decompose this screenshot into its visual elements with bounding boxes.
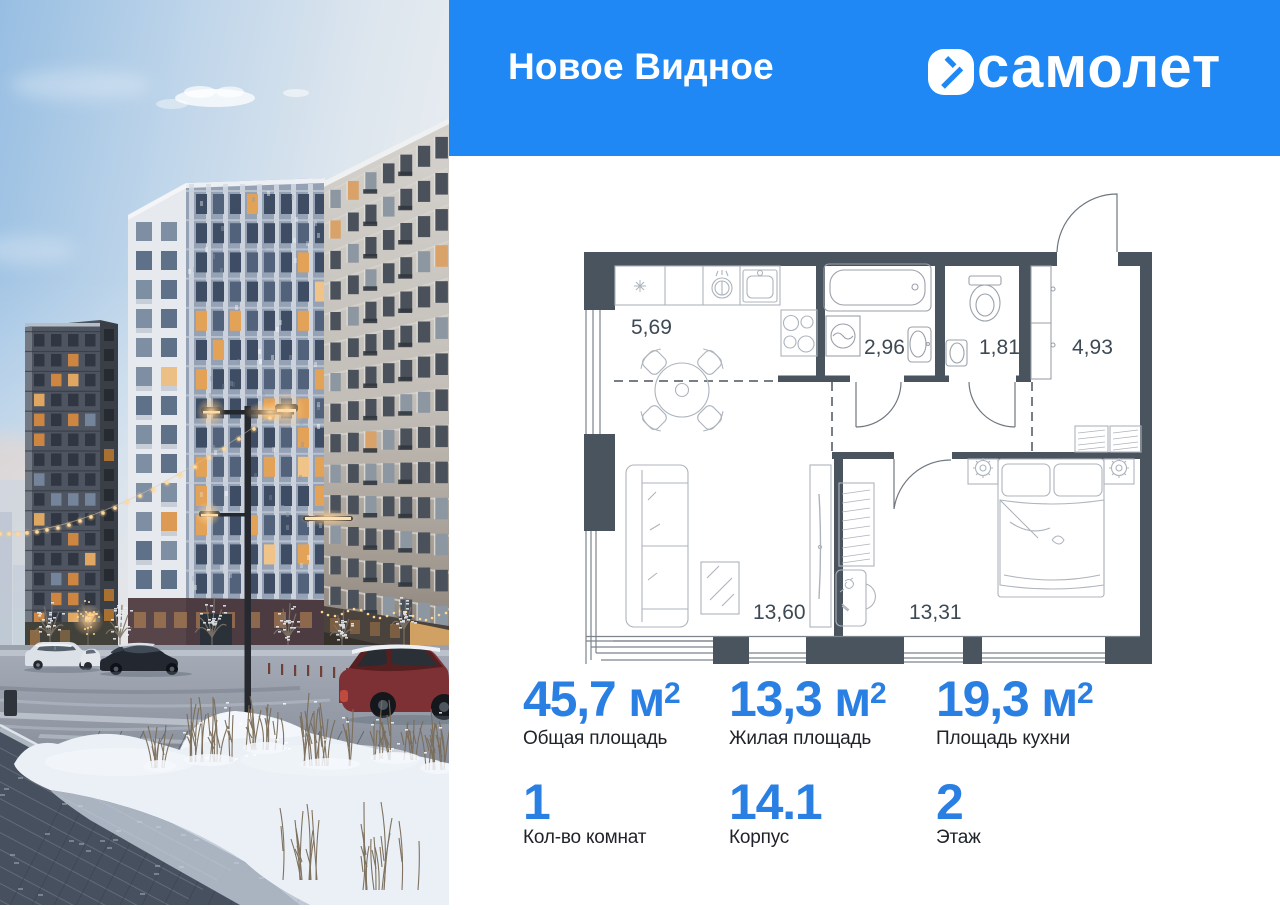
svg-text:13,31: 13,31 — [909, 601, 962, 624]
svg-text:5,69: 5,69 — [631, 316, 672, 339]
svg-text:4,93: 4,93 — [1072, 336, 1113, 359]
svg-text:2,96: 2,96 — [864, 336, 905, 359]
svg-text:13,60: 13,60 — [753, 601, 806, 624]
svg-text:1,81: 1,81 — [979, 336, 1020, 359]
